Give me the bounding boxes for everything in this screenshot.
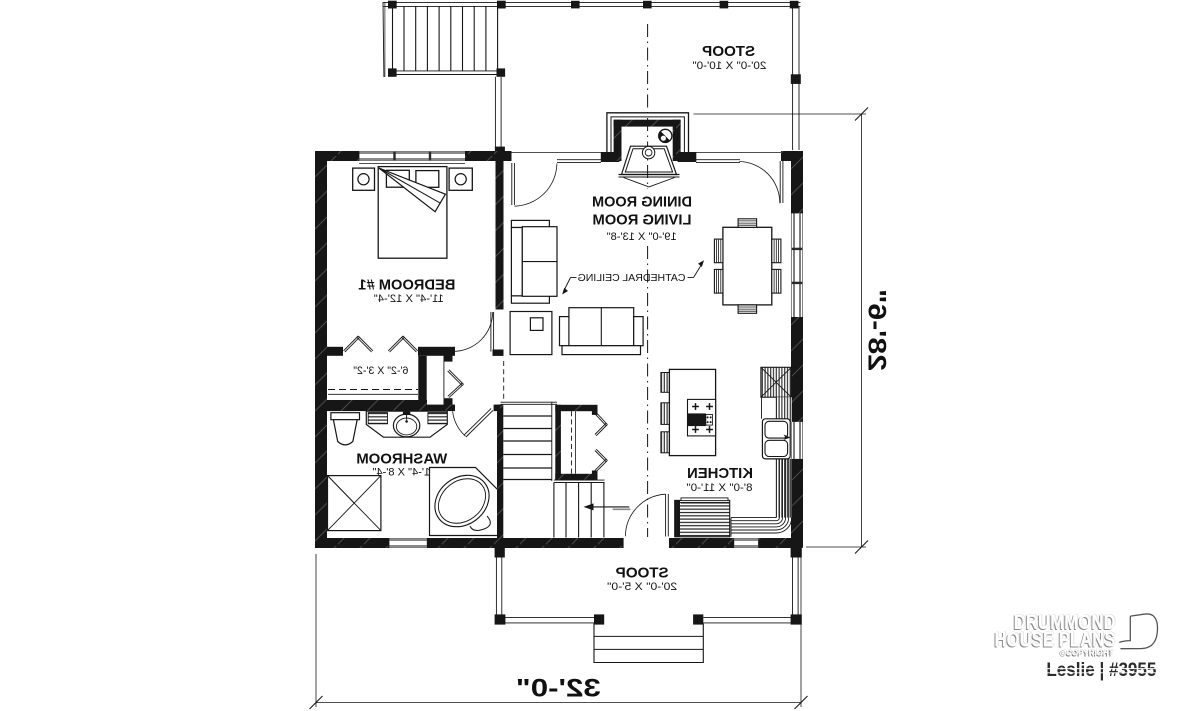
svg-text:©COPYRIGHT: ©COPYRIGHT — [1060, 647, 1114, 657]
svg-text:KITCHEN: KITCHEN — [687, 466, 753, 482]
svg-text:Leslie | #3955: Leslie | #3955 — [1046, 659, 1156, 681]
svg-text:11'-4" X 12'-4": 11'-4" X 12'-4" — [374, 293, 444, 305]
svg-text:CATHEDRAL CEILING: CATHEDRAL CEILING — [578, 272, 686, 284]
svg-text:19'-0" X 13'-8": 19'-0" X 13'-8" — [606, 231, 676, 243]
svg-text:20'-0" X 10'-0": 20'-0" X 10'-0" — [692, 60, 766, 72]
svg-text:LIVING ROOM: LIVING ROOM — [593, 212, 692, 228]
svg-text:28'-6": 28'-6" — [862, 289, 890, 371]
svg-text:WASHROOM: WASHROOM — [356, 452, 447, 468]
svg-text:8'-0" X 11'-0": 8'-0" X 11'-0" — [686, 482, 752, 494]
svg-text:STOOP: STOOP — [615, 566, 668, 582]
svg-text:DINING ROOM: DINING ROOM — [592, 194, 692, 210]
svg-text:STOOP: STOOP — [702, 44, 755, 60]
svg-text:11'-4" X 8'-4": 11'-4" X 8'-4" — [372, 467, 435, 479]
svg-text:6'-2" X 3'-2": 6'-2" X 3'-2" — [353, 365, 408, 377]
svg-text:BEDROOM #1: BEDROOM #1 — [358, 278, 455, 294]
svg-text:20'-0" X 5'-0": 20'-0" X 5'-0" — [607, 581, 677, 593]
svg-text:32'-0": 32'-0" — [516, 674, 601, 702]
